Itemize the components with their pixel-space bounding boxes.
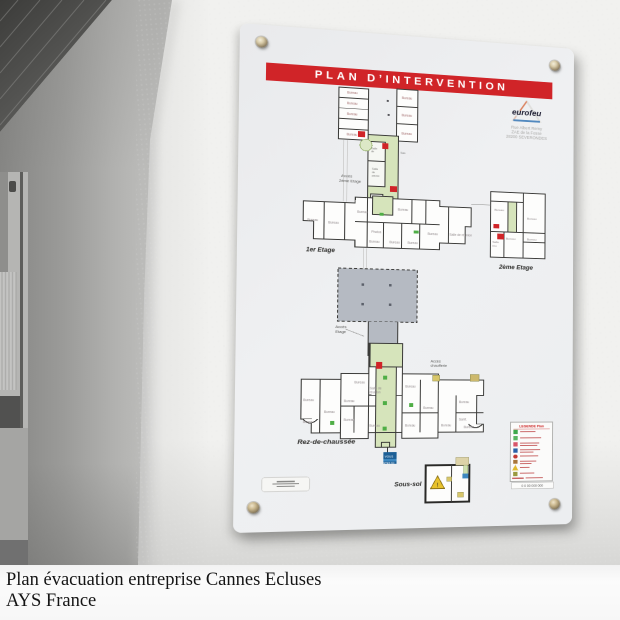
svg-text:réu: réu <box>492 244 496 248</box>
svg-text:2ème Etage: 2ème Etage <box>339 178 362 184</box>
svg-text:Etage: Etage <box>335 329 346 334</box>
svg-text:Bureau: Bureau <box>441 424 451 428</box>
svg-text:Bureau: Bureau <box>344 418 355 422</box>
svg-text:!: ! <box>437 483 439 489</box>
svg-text:réunion: réunion <box>370 390 381 394</box>
svg-text:Bureau: Bureau <box>347 91 358 95</box>
svg-text:1er Etage: 1er Etage <box>306 247 335 254</box>
svg-text:de: de <box>371 149 375 153</box>
svg-text:Bureau: Bureau <box>357 210 368 214</box>
svg-text:Bureau: Bureau <box>303 398 314 402</box>
svg-text:Bureau: Bureau <box>402 113 412 117</box>
svg-text:Bureau: Bureau <box>402 96 412 100</box>
svg-text:Photos: Photos <box>371 230 381 234</box>
svg-text:Salle de réunion: Salle de réunion <box>449 233 472 237</box>
svg-text:Bureau: Bureau <box>428 232 438 236</box>
svg-text:Bureau: Bureau <box>369 424 380 428</box>
svg-text:Bureau: Bureau <box>494 208 504 212</box>
svg-text:Bureau: Bureau <box>459 400 469 404</box>
svg-text:Bureau: Bureau <box>307 218 318 222</box>
svg-text:Bureau: Bureau <box>347 112 358 116</box>
svg-text:Bureau: Bureau <box>328 221 339 225</box>
svg-text:VOUS: VOUS <box>385 455 394 459</box>
svg-text:Sous-sol: Sous-sol <box>394 481 421 488</box>
svg-text:Bureau: Bureau <box>402 132 412 136</box>
svg-text:Bureau: Bureau <box>398 208 408 212</box>
svg-text:Bureau: Bureau <box>344 399 355 403</box>
svg-text:Bureau: Bureau <box>405 424 415 428</box>
svg-text:ETES ICI: ETES ICI <box>383 461 394 465</box>
svg-text:Bureau: Bureau <box>324 410 335 414</box>
svg-text:Bureau: Bureau <box>369 240 380 244</box>
svg-text:Bureau: Bureau <box>506 237 516 241</box>
svg-text:Sas: Sas <box>400 151 406 155</box>
svg-text:2ème Etage: 2ème Etage <box>498 264 533 271</box>
svg-text:Bureau: Bureau <box>347 101 358 105</box>
svg-text:LEGENDE Plan: LEGENDE Plan <box>519 425 544 429</box>
svg-text:pause: pause <box>372 174 380 178</box>
svg-text:Bureau: Bureau <box>527 217 537 221</box>
svg-text:Bureau: Bureau <box>464 425 474 429</box>
svg-text:0 0 00 000 000: 0 0 00 000 000 <box>521 484 543 488</box>
svg-text:Bureau: Bureau <box>408 241 418 245</box>
svg-text:Sanit.: Sanit. <box>459 418 467 422</box>
svg-text:Bureau: Bureau <box>347 133 358 137</box>
svg-text:Bureau: Bureau <box>389 240 400 244</box>
svg-text:Bureau: Bureau <box>423 406 433 410</box>
svg-text:Bureau: Bureau <box>405 385 415 389</box>
svg-text:Bureau: Bureau <box>303 420 314 424</box>
svg-text:chaufferie: chaufferie <box>431 363 448 368</box>
svg-text:Bureau: Bureau <box>527 238 537 242</box>
svg-text:Bureau: Bureau <box>354 381 365 385</box>
svg-text:Rez-de-chaussée: Rez-de-chaussée <box>297 437 355 446</box>
